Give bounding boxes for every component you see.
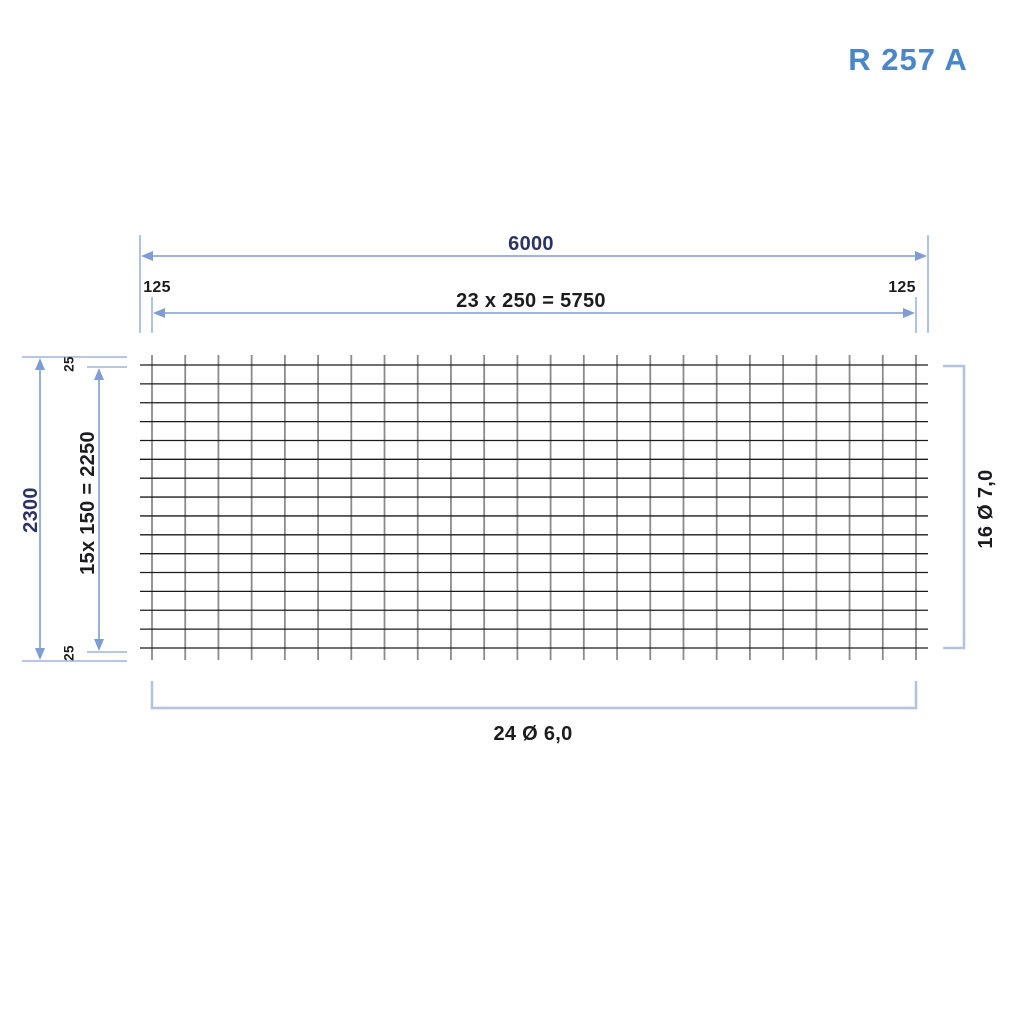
drawing-canvas: R 257 A 6000 23 x 250 = 5750 125 125 230… bbox=[0, 0, 1020, 1020]
dim-edge-left: 125 bbox=[143, 280, 171, 296]
dim-inner-height: 15x 150 = 2250 bbox=[78, 431, 98, 575]
dim-edge-top: 25 bbox=[62, 356, 76, 372]
dim-overall-width: 6000 bbox=[508, 234, 554, 254]
label-longitudinal-bars: 24 Ø 6,0 bbox=[493, 724, 572, 744]
drawing-number: R 257 A bbox=[848, 42, 968, 78]
label-cross-bars: 16 Ø 7,0 bbox=[976, 469, 996, 548]
mesh-diagram bbox=[0, 0, 1020, 1020]
dim-edge-right: 125 bbox=[888, 280, 916, 296]
dim-overall-height: 2300 bbox=[21, 487, 41, 533]
dim-edge-bottom: 25 bbox=[62, 645, 76, 661]
dim-inner-width: 23 x 250 = 5750 bbox=[456, 291, 606, 311]
